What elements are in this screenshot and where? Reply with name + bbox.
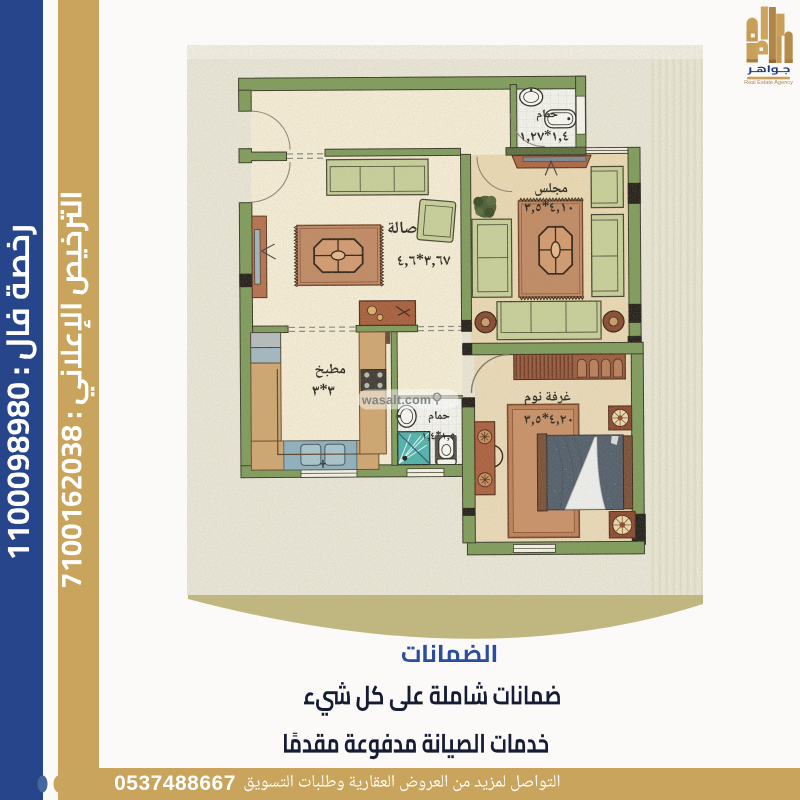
svg-text:Real Estate Agency: Real Estate Agency [744, 80, 793, 86]
svg-text:0537488667: 0537488667 [114, 772, 236, 795]
